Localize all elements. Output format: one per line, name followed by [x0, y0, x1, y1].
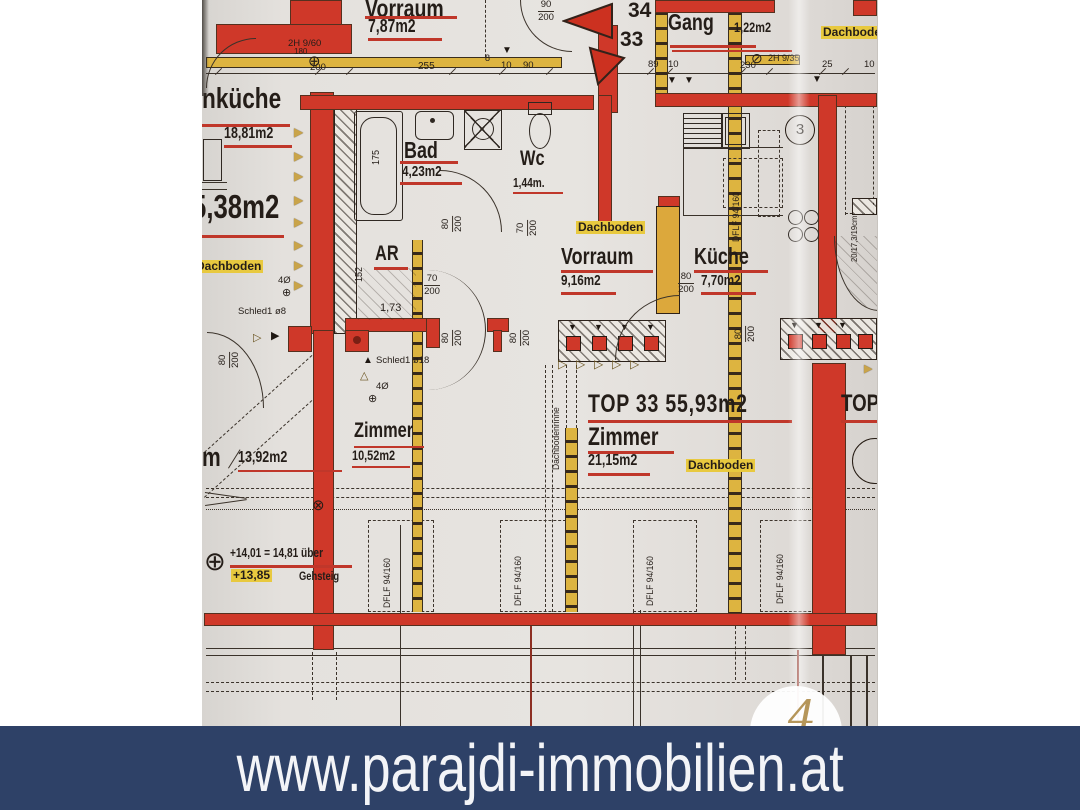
roof-window-label: DFLF 94/160 — [646, 556, 656, 606]
dachboden-label: Dachboden — [576, 221, 645, 234]
dim: 10 — [864, 60, 875, 70]
eave-line — [206, 648, 875, 649]
roof-line — [206, 488, 875, 489]
dim: 255 — [418, 62, 435, 73]
shower-drain — [472, 118, 494, 140]
flue-marker-icon: ▼ — [838, 321, 847, 330]
dim: 200 — [424, 287, 440, 297]
wall-segment — [310, 92, 334, 334]
flue — [592, 336, 607, 351]
dimension-line — [206, 73, 875, 74]
door-marker-icon: ▼ — [667, 76, 677, 86]
eave-line — [206, 655, 875, 656]
wall-segment — [818, 95, 837, 333]
label-underline — [701, 292, 756, 295]
valley-line — [205, 499, 247, 506]
vent-marker-icon: ▷ — [612, 358, 621, 370]
apartment-label-next: TOP — [841, 391, 878, 416]
dim-stack: 80200 — [678, 272, 694, 296]
roof-window — [633, 520, 697, 612]
website-url: www.parajdi-immobilien.at — [236, 730, 843, 807]
entry-arrow-icon — [582, 46, 626, 86]
dim-stack: 70200 — [424, 274, 440, 298]
roof-line — [206, 497, 875, 498]
label-underline — [588, 473, 650, 476]
plan-line — [530, 620, 532, 726]
room-label-wc: Wc — [520, 148, 545, 170]
slide-marker-icon: ▲ — [363, 356, 373, 366]
dim-stack: 80200 — [441, 216, 465, 232]
dim-stack: 90200 — [538, 0, 554, 24]
roof-window — [368, 520, 434, 612]
room-label-kueche: Küche — [694, 244, 749, 268]
north-arrow-icon — [562, 2, 614, 40]
dim-rotated: 175 — [372, 150, 383, 165]
axis-bubble-4 — [852, 438, 878, 484]
roof-window-label: DFLF 94/160 — [732, 192, 742, 242]
counter-line — [683, 147, 783, 148]
attic-marker-icon: ▶ — [294, 216, 303, 228]
room-label-cut: m — [202, 443, 221, 471]
label-underline — [352, 466, 410, 468]
stair-note: 20/17,3/19cm — [850, 216, 859, 262]
label-underline — [672, 50, 792, 52]
dim: 70 — [427, 274, 438, 284]
roof-dash — [873, 95, 874, 215]
apartment-label-top33: TOP 33 55,93m2 — [588, 391, 748, 417]
label-underline — [400, 182, 462, 185]
note-schled8: Schled1 ø8 — [238, 307, 286, 317]
slide-marker-icon: △ — [360, 371, 368, 382]
wall-segment — [204, 613, 877, 626]
flue — [812, 334, 827, 349]
area-label: 18,81m2 — [224, 126, 273, 143]
drill-point-icon: ⊕ — [368, 394, 377, 406]
dim: 90 — [541, 0, 552, 10]
label-underline — [374, 267, 408, 270]
door-line — [202, 182, 227, 183]
counter-line — [683, 147, 684, 215]
gutter-label: Dachbodenrinne — [552, 407, 562, 470]
vent-marker-icon: ▷ — [594, 358, 603, 370]
flue — [836, 334, 851, 349]
vent-marker-icon: ▷ — [576, 358, 585, 370]
dim: 200 — [455, 216, 465, 232]
washbasin-drain — [430, 118, 435, 123]
kitchen-drainer — [683, 113, 723, 149]
dim-stack: 80200 — [734, 326, 758, 342]
dim-rotated: 152 — [355, 267, 366, 282]
attic-marker-icon: ▶ — [294, 170, 303, 182]
dim-173: 1,73 — [380, 303, 401, 315]
dim: 200 — [232, 352, 242, 368]
dim: 180 — [294, 48, 307, 56]
watermark-circle: 4 — [750, 686, 842, 726]
toilet-bowl — [529, 113, 551, 149]
axis-number-34: 34 — [628, 0, 651, 22]
room-label-ar: AR — [375, 243, 399, 265]
attic-marker-icon: ▶ — [294, 194, 303, 206]
gutter-dash — [566, 365, 567, 428]
plan-line — [640, 610, 641, 726]
area-label: 13,92m2 — [238, 450, 287, 467]
wall-dot — [353, 336, 361, 344]
attic-marker-icon: ▶ — [294, 126, 303, 138]
dim: 89 — [648, 60, 659, 70]
area-label: 1,22m2 — [734, 20, 771, 35]
plan-dash — [745, 626, 746, 680]
dim: 200 — [455, 330, 465, 346]
roof-window-label: DFLF 94/160 — [776, 554, 786, 604]
screenshot: ▼ ▼ ▼ ▼ ▼ ▼ ▼ — [0, 0, 1080, 810]
roof-window — [500, 520, 566, 612]
wall-hatch — [852, 198, 877, 215]
label-underline — [202, 235, 284, 238]
dim: 10 — [668, 60, 679, 70]
door-marker-icon: ▶ — [864, 364, 872, 375]
dim: 80 — [509, 333, 519, 344]
dim: 90 — [523, 61, 534, 71]
area-label: 10,52m2 — [352, 448, 395, 463]
attic-marker-icon: ▶ — [294, 239, 303, 251]
area-label: 9,16m2 — [561, 273, 601, 289]
room-label-zimmer-klein: Zimmer — [354, 420, 413, 442]
dim: 230 — [740, 61, 756, 71]
dachboden-label: Dachboden — [686, 459, 755, 472]
door-marker-icon: ▼ — [502, 46, 512, 56]
roof-window-label: DFLF 94/160 — [514, 556, 524, 606]
dachboden-label: Dachboden — [821, 26, 878, 39]
wall-niche — [203, 139, 222, 181]
attic-marker-icon: ▶ — [294, 259, 303, 271]
area-label: 7,70m2 — [701, 273, 741, 289]
door-swing — [615, 295, 680, 360]
door-marker-icon: ▼ — [684, 76, 694, 86]
level-value: +13,85 — [231, 569, 272, 582]
label-underline — [670, 45, 756, 48]
axis-number-33: 33 — [620, 29, 643, 51]
dim: 200 — [748, 326, 758, 342]
axis-cross-icon: ⊗ — [312, 498, 325, 514]
dim: 80 — [681, 272, 692, 282]
wall-segment — [290, 0, 342, 26]
timber-post — [565, 428, 578, 612]
dim: 200 — [310, 63, 326, 73]
door-swing — [206, 38, 256, 88]
area-label: 21,15m2 — [588, 453, 637, 470]
dachboden-label: Dachboden — [202, 260, 263, 273]
area-label: 1,44m. — [513, 176, 545, 190]
level-point-icon: ⊕ — [204, 548, 226, 575]
dim: 200 — [523, 330, 533, 346]
dim-stack: 80200 — [441, 330, 465, 346]
kitchen-sink-basin — [725, 117, 746, 145]
plan-line — [633, 610, 634, 726]
attic-marker-icon: ▶ — [294, 150, 303, 162]
dim: 200 — [678, 285, 694, 295]
door-marker-icon: ▷ — [253, 333, 261, 344]
dim: 80 — [734, 329, 744, 340]
vent-marker-icon: ▷ — [558, 358, 567, 370]
room-label-gang: Gang — [668, 10, 714, 34]
area-label: 7,87m2 — [368, 17, 416, 36]
dim-stack: 70200 — [516, 220, 540, 236]
attic-marker-icon: ▶ — [294, 279, 303, 291]
dim: 10 — [501, 61, 512, 71]
label-underline — [238, 470, 342, 472]
flue-marker-icon: ▼ — [814, 321, 823, 330]
wall-jamb — [493, 330, 502, 352]
bathtub-inner — [360, 117, 397, 215]
level-annotation: +14,01 = 14,81 über — [230, 546, 323, 560]
dim: 8 — [485, 54, 490, 63]
plan-dash — [336, 652, 337, 700]
flue — [566, 336, 581, 351]
room-label-bad: Bad — [404, 138, 438, 162]
level-annotation2: Gehsteig — [299, 570, 339, 583]
plan-dash — [312, 652, 313, 700]
room-label-wohnkueche: nküche — [202, 84, 281, 114]
hip-line — [204, 393, 320, 497]
vent-marker-icon: ▷ — [630, 358, 639, 370]
note-4o: 4Ø — [278, 276, 291, 286]
plan-dash — [735, 626, 736, 680]
wall-segment — [598, 95, 612, 233]
roof-edge-line — [206, 682, 875, 683]
dim: 200 — [538, 13, 554, 23]
drill-point-icon: ⊕ — [282, 288, 291, 300]
door-marker-icon: ▶ — [271, 331, 279, 342]
dim: 25 — [822, 60, 833, 70]
wall-segment — [655, 93, 877, 107]
gutter-dash — [545, 365, 546, 612]
dim: 80 — [218, 355, 228, 366]
note-4o: 4Ø — [376, 382, 389, 392]
label-underline — [513, 192, 563, 194]
door-marker-icon: ▼ — [812, 75, 822, 85]
plan-line — [866, 655, 868, 726]
flue-marker-icon: ▼ — [594, 323, 603, 332]
note-schled18: Schled1 ø18 — [376, 356, 429, 366]
label-underline — [224, 145, 292, 148]
area-label-538: 5,38m2 — [202, 190, 279, 225]
photo-edge-shadow — [202, 0, 209, 96]
gutter-dash — [552, 365, 553, 612]
flue — [858, 334, 873, 349]
roof-window-label: DFLF 94/160 — [383, 558, 393, 608]
dim-stack: 80200 — [509, 330, 533, 346]
flue-marker-icon: ▼ — [568, 323, 577, 332]
website-banner: www.parajdi-immobilien.at — [0, 726, 1080, 810]
label-underline — [841, 420, 878, 423]
dim: 80 — [441, 219, 451, 230]
wall-segment — [288, 326, 312, 352]
dim-stack: 80200 — [218, 352, 242, 368]
label-underline — [368, 38, 442, 41]
wall-segment — [313, 330, 334, 650]
area-label: 4,23m2 — [402, 164, 442, 180]
room-label-vorraum: Vorraum — [561, 244, 633, 268]
roof-dash — [845, 95, 846, 215]
ridge-line — [206, 509, 875, 510]
watermark-digit: 4 — [788, 692, 816, 726]
wall-segment — [853, 0, 877, 16]
gutter-dash — [576, 365, 577, 428]
label-underline — [561, 292, 616, 295]
room-label-zimmer-gross: Zimmer — [588, 424, 658, 450]
photo-crease — [788, 0, 810, 726]
floor-plan-photo: ▼ ▼ ▼ ▼ ▼ ▼ ▼ — [202, 0, 878, 726]
plan-line — [850, 655, 852, 726]
dim: 70 — [516, 223, 526, 234]
washbasin — [415, 111, 454, 140]
dim: 80 — [441, 333, 451, 344]
dim: 200 — [530, 220, 540, 236]
